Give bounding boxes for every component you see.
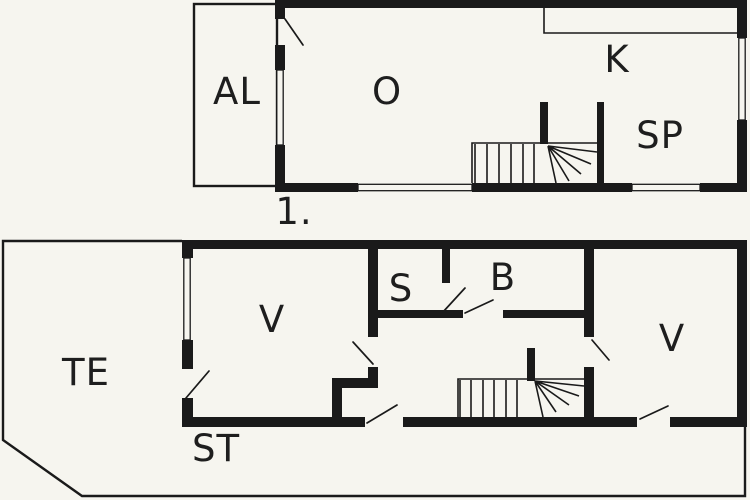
wall — [584, 249, 594, 337]
wall — [527, 348, 535, 381]
wall — [368, 310, 463, 318]
room-label-k: K — [604, 38, 630, 81]
wall — [737, 240, 747, 427]
wall — [597, 102, 604, 183]
wall — [368, 249, 378, 337]
room-label-te: TE — [61, 351, 110, 394]
floor-caption: 1. — [275, 190, 312, 233]
room-label-b: B — [490, 256, 516, 299]
wall — [182, 417, 365, 427]
window — [277, 70, 283, 145]
room-label-s: S — [389, 267, 414, 310]
wall — [584, 367, 594, 417]
room-label-v-right: V — [659, 317, 685, 360]
wall — [275, 0, 285, 19]
room-label-al: AL — [213, 70, 261, 113]
window — [632, 184, 700, 190]
wall — [540, 102, 548, 144]
wall — [737, 120, 747, 192]
wall — [472, 183, 632, 192]
floor-plan-drawing: AL O K SP 1. — [0, 0, 750, 500]
wall — [275, 0, 747, 8]
wall — [332, 378, 342, 417]
wall — [670, 417, 747, 427]
wall — [737, 0, 747, 38]
wall — [442, 249, 450, 283]
window — [739, 38, 745, 120]
window — [184, 258, 190, 340]
wall — [700, 183, 747, 192]
wall — [182, 240, 193, 258]
wall — [503, 310, 584, 318]
wall — [182, 340, 193, 369]
floor-plan-page: AL O K SP 1. — [0, 0, 750, 500]
room-label-st: ST — [192, 427, 240, 470]
room-label-v-left: V — [259, 298, 285, 341]
room-label-o: O — [372, 70, 402, 113]
room-label-sp: SP — [636, 114, 684, 157]
window — [358, 184, 472, 190]
wall — [182, 240, 747, 249]
wall — [403, 417, 637, 427]
wall — [275, 45, 285, 70]
